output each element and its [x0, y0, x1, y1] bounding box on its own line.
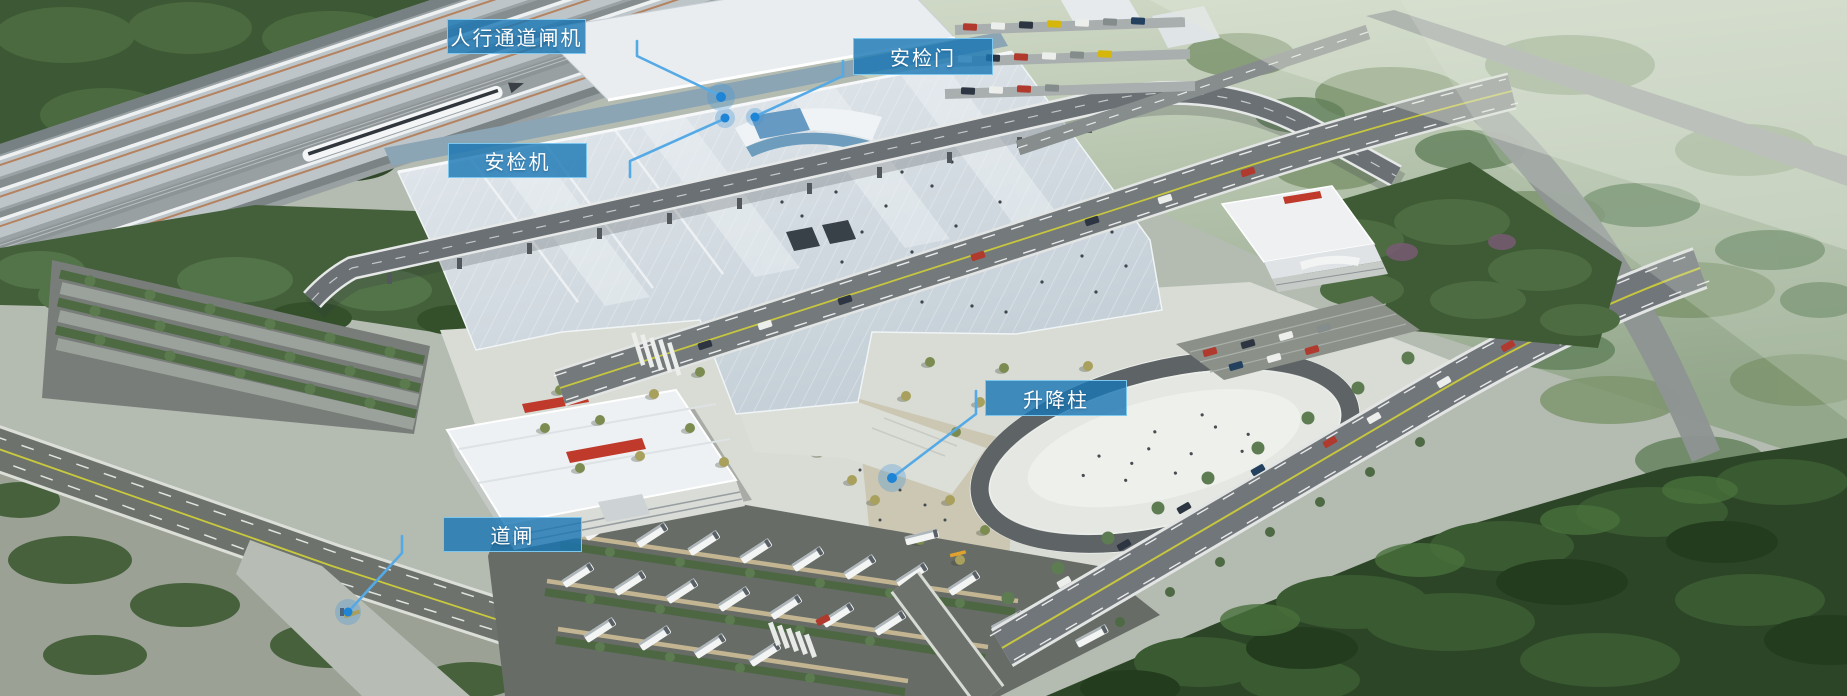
aerial-render-background — [0, 0, 1847, 696]
marker-dot-pedestrian-gate[interactable] — [716, 92, 726, 102]
marker-dot-security-door[interactable] — [751, 113, 760, 122]
callout-label-pedestrian-gate[interactable]: 人行通道闸机 — [447, 19, 586, 54]
callout-label-barrier-gate[interactable]: 道闸 — [443, 517, 582, 552]
marker-dot-lifting-bollard[interactable] — [887, 473, 897, 483]
marker-dot-security-scanner[interactable] — [721, 114, 730, 123]
aerial-hub-banner: 人行通道闸机 安检门 安检机 升降柱 道闸 — [0, 0, 1847, 696]
callout-label-security-scanner[interactable]: 安检机 — [448, 143, 587, 178]
callout-label-lifting-bollard[interactable]: 升降柱 — [985, 380, 1127, 416]
marker-dot-barrier-gate[interactable] — [344, 608, 353, 617]
callout-label-security-door[interactable]: 安检门 — [853, 38, 993, 75]
